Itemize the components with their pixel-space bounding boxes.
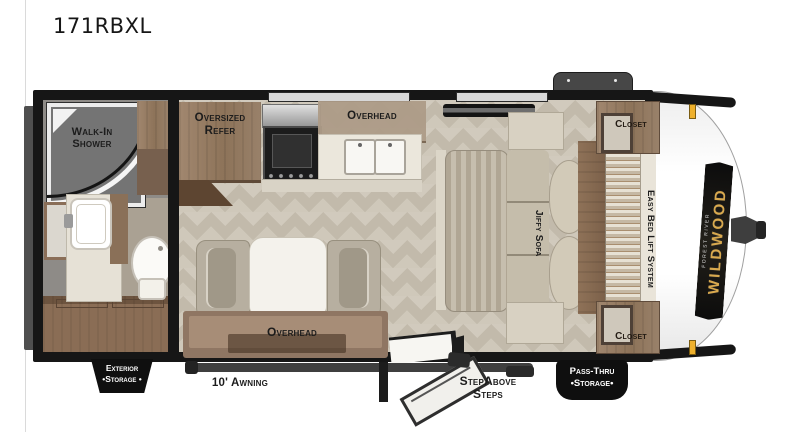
marker-light-bottom [689, 340, 696, 355]
closet-bottom-label: Closet [606, 331, 656, 342]
bathroom-sink [70, 198, 112, 250]
closet-top-label: Closet [606, 119, 656, 130]
sink-faucet [64, 214, 73, 228]
bed-frame [578, 141, 605, 314]
marker-light-top [689, 104, 696, 119]
shower-label: Walk-In Shower [52, 126, 132, 151]
end-table-top [508, 112, 564, 150]
overhead-dinette-label: Overhead [252, 326, 332, 339]
bench-cushion [339, 248, 369, 308]
screw-dot [567, 79, 570, 82]
bench-cushion [206, 248, 236, 308]
exterior-storage-tab: Exterior •Storage • [85, 359, 159, 393]
bedroom-window [456, 92, 548, 102]
end-table-bottom [506, 302, 564, 344]
exterior-storage-label: Exterior •Storage • [85, 359, 159, 385]
easy-bed-label: Easy Bed Lift System [639, 163, 655, 315]
kitchen-sink-left [344, 139, 376, 175]
step-connector [447, 352, 470, 368]
bed-mattress [605, 139, 642, 317]
bath-cabinet-upper [137, 101, 169, 149]
kitchen-sink-right [374, 139, 406, 175]
screw-dot [614, 79, 617, 82]
step-rail-stub [379, 362, 388, 402]
range-hood [262, 104, 321, 128]
oven-window [272, 134, 312, 168]
steps-label: StepAbove Steps [450, 375, 526, 402]
passthru-storage-label: Pass-Thru •Storage• [556, 360, 628, 391]
bath-cabinet-lower [137, 149, 169, 195]
vanity-side-panel [110, 194, 128, 264]
passthru-storage-tab: Pass-Thru •Storage• [556, 360, 628, 400]
counter-face [262, 179, 422, 192]
toilet-hinge-dot [158, 246, 163, 251]
dinette-table [249, 237, 327, 315]
jiffy-sofa-label: Jiffy Sofa [527, 190, 544, 276]
bath-divider-wall [168, 100, 179, 352]
sofa-seat [445, 150, 509, 312]
model-title: 171RBXL [53, 14, 152, 38]
hitch-cap [756, 221, 766, 239]
awning-label: 10' Awning [198, 377, 282, 390]
toilet-seat [138, 278, 166, 300]
overhead-kitchen-label: Overhead [322, 110, 422, 123]
refer-label: Oversized Refer [181, 112, 259, 138]
floorplan-diagram: 171RBXL FOREST RIVER WILDWOOD [0, 0, 800, 432]
awning-cap-left [185, 361, 198, 374]
